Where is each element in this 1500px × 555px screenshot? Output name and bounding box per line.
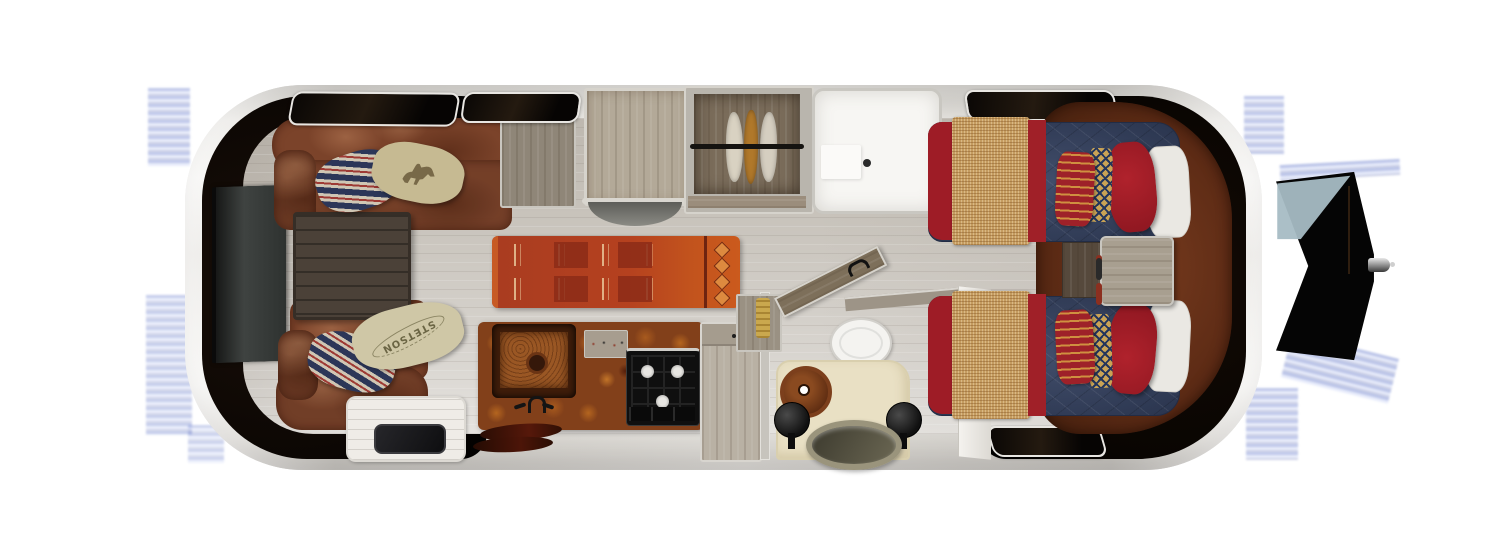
window-rear-top-2 bbox=[460, 92, 582, 123]
overhead-cabinet bbox=[584, 88, 692, 206]
closet-rod bbox=[690, 144, 804, 149]
artifact-streak bbox=[148, 88, 190, 166]
door-handle-icon bbox=[845, 257, 870, 278]
horse-icon bbox=[393, 152, 443, 194]
rug-block bbox=[618, 276, 652, 302]
rug-diamond bbox=[714, 290, 731, 307]
shower-bench bbox=[821, 145, 861, 179]
rug-border-left bbox=[492, 236, 498, 308]
hitch-assembly bbox=[1276, 170, 1400, 362]
wardrobe bbox=[684, 86, 814, 214]
cooktop-tray bbox=[629, 407, 695, 421]
artifact-streak bbox=[1246, 388, 1298, 460]
door-mat bbox=[374, 424, 446, 454]
striped-red-pillow-top bbox=[1054, 151, 1096, 227]
burner-icon bbox=[671, 365, 684, 378]
red-band-top bbox=[1028, 120, 1046, 242]
towel bbox=[756, 298, 770, 338]
faucet-handle bbox=[514, 402, 527, 410]
tan-blanket-top bbox=[952, 117, 1030, 245]
hitch-jack-line bbox=[1348, 186, 1350, 274]
shower-drain-icon bbox=[863, 159, 871, 167]
rug-diamond bbox=[714, 258, 731, 275]
burner-icon bbox=[641, 365, 654, 378]
rug-block bbox=[554, 276, 588, 302]
nightstand-top bbox=[1100, 236, 1174, 306]
coffee-table bbox=[293, 212, 411, 320]
shower bbox=[812, 88, 942, 214]
floorplan-scene: STETSON bbox=[0, 0, 1500, 555]
spice-rack bbox=[584, 330, 628, 358]
striped-red-pillow-bottom bbox=[1054, 309, 1096, 385]
rug-band-stripe bbox=[704, 236, 707, 308]
toilet-seat-ring bbox=[839, 327, 883, 359]
coupler-knob bbox=[1390, 262, 1395, 267]
window-rear-top-1 bbox=[287, 91, 461, 126]
sink-drain-icon bbox=[526, 352, 548, 374]
artifact-streak bbox=[1244, 96, 1284, 154]
red-band-bottom bbox=[1028, 294, 1046, 416]
sink-drain-icon bbox=[800, 386, 808, 394]
copper-sink bbox=[492, 324, 576, 398]
end-cabinet bbox=[500, 116, 576, 208]
coupler bbox=[1368, 258, 1390, 272]
rug-diamond bbox=[714, 242, 731, 259]
rug-block bbox=[618, 242, 652, 268]
rug-diamond bbox=[714, 274, 731, 291]
drawer-handle-icon bbox=[1096, 258, 1102, 280]
wardrobe-sill bbox=[688, 196, 806, 208]
runner-rug bbox=[492, 236, 740, 308]
oval-basin bbox=[806, 420, 902, 470]
stool bbox=[774, 402, 810, 438]
tan-blanket-bottom bbox=[952, 291, 1030, 419]
kitchen-faucet bbox=[514, 396, 554, 414]
stetson-pillow-text: STETSON bbox=[368, 309, 448, 364]
rug-block bbox=[554, 242, 588, 268]
cooktop bbox=[626, 348, 700, 426]
